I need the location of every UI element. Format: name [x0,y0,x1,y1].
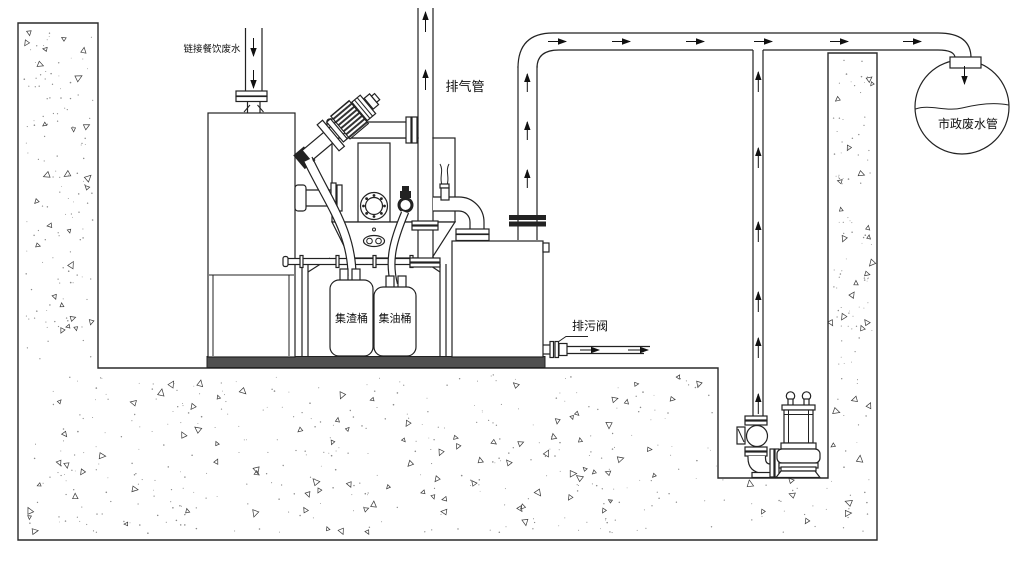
submersible-pump [776,392,820,478]
installation-diagram: 市政废水管 [0,0,1017,562]
pump-riser-pipe [737,50,779,478]
inlet-pipe [236,28,267,113]
drain-valve-label: 排污阀 [572,319,608,333]
support-rod [287,259,427,265]
tank-riser-pipe [509,66,546,240]
inspection-flange [361,193,388,220]
drain-valve [543,337,650,358]
vent-label: 排气管 [445,79,484,95]
municipal-label: 市政废水管 [938,116,998,131]
check-valve [737,416,768,456]
lifting-tank [452,241,549,357]
inlet-tank [208,113,295,357]
oil-bucket-label: 集油桶 [379,311,412,325]
base-plate [207,357,545,368]
municipal-sewer: 市政废水管 [915,57,1009,154]
slag-bucket-label: 集渣桶 [335,311,368,325]
valve-handle [558,337,588,343]
oil-bucket: 集油桶 [374,276,416,356]
inlet-label: 链接餐饮废水 [183,43,241,55]
discharge-pipe [518,33,971,68]
slag-bucket: 集渣桶 [330,269,373,356]
pump-volute [777,449,820,463]
logo-plate [364,236,385,247]
